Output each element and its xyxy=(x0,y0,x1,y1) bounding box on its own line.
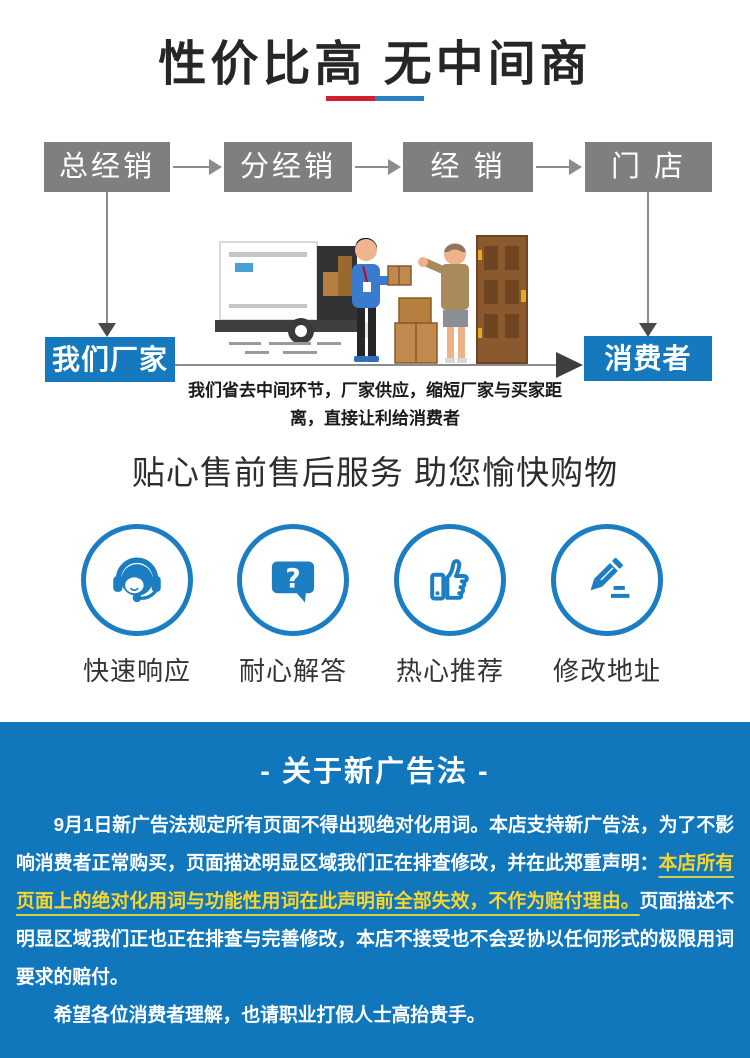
advertising-law-notice: - 关于新广告法 - 9月1日新广告法规定所有页面不得出现绝对化用词。本店支持新… xyxy=(0,722,750,1058)
service-circle: ? xyxy=(237,524,349,636)
chain-box-sub-distributor: 分经销 xyxy=(224,142,352,192)
header-section: 性价比高 无中间商 xyxy=(0,0,750,130)
service-label: 快速响应 xyxy=(62,651,212,688)
down-connector-line xyxy=(647,192,649,323)
factory-box: 我们厂家 xyxy=(45,337,175,382)
chain-box-store: 门 店 xyxy=(585,142,712,192)
notice-closing-line: 希望各位消费者理解，也请职业打假人士高抬贵手。 xyxy=(16,996,734,1034)
distribution-flow-diagram: 总经销 分经销 经 销 门 店 xyxy=(0,130,750,430)
svg-text:?: ? xyxy=(285,563,300,594)
notice-text-segment: 9月1日新广告法规定所有页面不得出现绝对化用词。本店支持新广告法，为了不影响消费… xyxy=(16,814,734,873)
service-label: 热心推荐 xyxy=(375,651,525,688)
title-underline xyxy=(326,96,424,101)
service-circle xyxy=(551,524,663,636)
notice-paragraph: 9月1日新广告法规定所有页面不得出现绝对化用词。本店支持新广告法，为了不影响消费… xyxy=(16,806,734,996)
down-arrow-icon xyxy=(639,323,657,337)
headset-icon xyxy=(104,547,170,613)
right-arrowhead-icon xyxy=(556,352,583,378)
service-item-quick-response: 快速响应 xyxy=(62,524,212,688)
underline-red-segment xyxy=(326,96,375,101)
right-arrow-icon xyxy=(173,159,222,175)
chain-box-dealer: 经 销 xyxy=(403,142,533,192)
chain-box-general-distributor: 总经销 xyxy=(44,142,170,192)
notice-title: - 关于新广告法 - xyxy=(0,722,750,790)
service-label: 耐心解答 xyxy=(218,651,368,688)
right-arrow-icon xyxy=(536,159,582,175)
consumer-box: 消费者 xyxy=(584,336,712,381)
service-circle xyxy=(394,524,506,636)
service-item-warm-recommendation: 热心推荐 xyxy=(375,524,525,688)
pencil-icon xyxy=(574,547,640,613)
right-arrow-icon xyxy=(355,159,401,175)
underline-blue-segment xyxy=(375,96,424,101)
services-title: 贴心售前售后服务 助您愉快购物 xyxy=(0,430,750,494)
page-title: 性价比高 无中间商 xyxy=(0,0,750,94)
service-circle xyxy=(81,524,193,636)
services-section: 贴心售前售后服务 助您愉快购物 快速响应 ? 耐心解 xyxy=(0,430,750,722)
service-item-patient-answers: ? 耐心解答 xyxy=(218,524,368,688)
service-item-change-address: 修改地址 xyxy=(532,524,682,688)
flow-caption: 我们省去中间环节，厂家供应，缩短厂家与买家距离，直接让利给消费者 xyxy=(185,377,565,433)
delivery-truck-illustration xyxy=(205,230,535,365)
thumbs-up-icon xyxy=(417,547,483,613)
question-bubble-icon: ? xyxy=(260,547,326,613)
down-connector-line xyxy=(106,192,108,323)
down-arrow-icon xyxy=(98,323,116,337)
service-label: 修改地址 xyxy=(532,651,682,688)
